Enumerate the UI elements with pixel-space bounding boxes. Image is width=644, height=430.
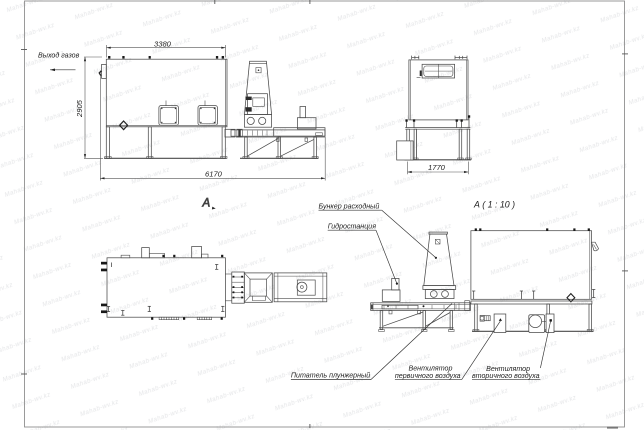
- svg-text:Бункер расходный: Бункер расходный: [319, 202, 380, 210]
- svg-text:А: А: [202, 198, 211, 210]
- svg-text:6170: 6170: [205, 169, 223, 178]
- svg-text:3380: 3380: [154, 39, 172, 48]
- svg-text:А ( 1 : 10 ): А ( 1 : 10 ): [473, 200, 515, 210]
- svg-text:Гидростанция: Гидростанция: [328, 222, 377, 230]
- svg-text:первичного воздуха: первичного воздуха: [395, 372, 461, 380]
- svg-text:Выход газов: Выход газов: [38, 52, 80, 60]
- svg-text:1770: 1770: [428, 163, 446, 172]
- svg-text:2905: 2905: [75, 99, 84, 118]
- svg-text:вторичного воздуха: вторичного воздуха: [472, 372, 540, 380]
- svg-text:Питатель плунжерный: Питатель плунжерный: [291, 372, 370, 380]
